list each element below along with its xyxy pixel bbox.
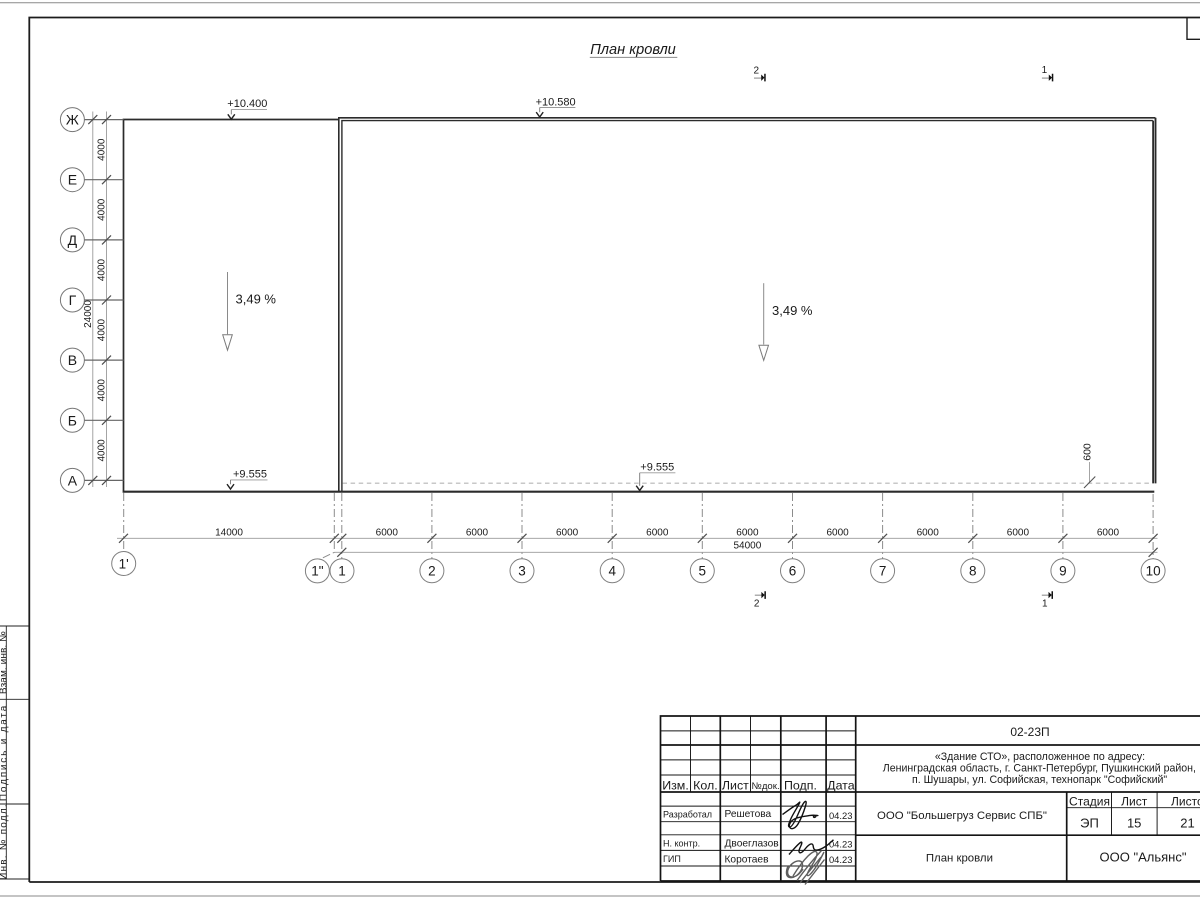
- svg-text:+10.580: +10.580: [536, 96, 576, 108]
- svg-text:Е: Е: [68, 172, 77, 188]
- svg-text:600: 600: [1082, 443, 1094, 461]
- svg-text:8: 8: [969, 564, 977, 579]
- svg-text:6000: 6000: [917, 528, 940, 539]
- svg-text:4: 4: [608, 564, 616, 579]
- svg-text:Листов: Листов: [1171, 795, 1200, 809]
- svg-text:02-23П: 02-23П: [1010, 725, 1049, 739]
- svg-text:Изм.: Изм.: [662, 778, 689, 792]
- svg-text:4000: 4000: [97, 198, 108, 221]
- svg-text:Подпись и дата: Подпись и дата: [0, 704, 9, 801]
- svg-text:15: 15: [1127, 816, 1141, 831]
- svg-text:1: 1: [1042, 598, 1048, 609]
- svg-text:6000: 6000: [556, 528, 579, 539]
- svg-text:6000: 6000: [646, 528, 669, 539]
- svg-text:Кол.: Кол.: [693, 778, 718, 792]
- svg-text:Г: Г: [69, 292, 77, 308]
- svg-text:6000: 6000: [826, 528, 849, 539]
- svg-text:Б: Б: [68, 412, 77, 428]
- svg-text:4000: 4000: [97, 439, 108, 462]
- svg-text:6000: 6000: [1007, 528, 1030, 539]
- svg-text:14000: 14000: [215, 528, 243, 539]
- svg-text:1": 1": [311, 564, 324, 579]
- svg-text:6000: 6000: [736, 528, 759, 539]
- svg-text:4000: 4000: [97, 258, 108, 281]
- svg-text:04.23: 04.23: [829, 810, 852, 821]
- svg-text:Стадия: Стадия: [1069, 795, 1110, 809]
- svg-text:ГИП: ГИП: [663, 854, 681, 864]
- svg-text:Решетова: Решетова: [725, 809, 772, 820]
- svg-text:Н. контр.: Н. контр.: [663, 838, 700, 848]
- svg-text:Лист: Лист: [722, 778, 749, 792]
- svg-text:6000: 6000: [1097, 528, 1120, 539]
- svg-text:ЭП: ЭП: [1080, 816, 1099, 831]
- svg-text:ООО "Большегруз Сервис СПБ": ООО "Большегруз Сервис СПБ": [877, 810, 1047, 822]
- svg-text:А: А: [68, 472, 78, 488]
- svg-text:6000: 6000: [376, 528, 399, 539]
- svg-text:Двоеглазов: Двоеглазов: [725, 839, 779, 850]
- svg-text:4000: 4000: [97, 138, 108, 161]
- svg-text:3: 3: [518, 564, 526, 579]
- svg-text:План кровли: План кровли: [590, 42, 676, 58]
- svg-text:п. Шушары, ул. Софийская, техн: п. Шушары, ул. Софийская, технопарк "Соф…: [912, 774, 1167, 786]
- svg-text:+10.400: +10.400: [227, 98, 267, 110]
- svg-text:+9.555: +9.555: [233, 469, 267, 481]
- svg-text:6000: 6000: [466, 528, 489, 539]
- svg-text:Ленинградская область, г. Санк: Ленинградская область, г. Санкт-Петербур…: [883, 763, 1196, 775]
- svg-text:10: 10: [1146, 564, 1161, 579]
- svg-text:№док.: №док.: [752, 781, 780, 792]
- svg-text:6: 6: [789, 564, 797, 579]
- svg-text:4000: 4000: [97, 319, 108, 342]
- svg-text:ООО "Альянс": ООО "Альянс": [1100, 850, 1187, 865]
- svg-text:5: 5: [699, 564, 707, 579]
- svg-text:2: 2: [754, 65, 760, 76]
- svg-text:54000: 54000: [733, 540, 761, 551]
- svg-text:21: 21: [1180, 816, 1194, 831]
- svg-text:+9.555: +9.555: [640, 461, 674, 473]
- svg-text:Лист: Лист: [1121, 795, 1148, 809]
- svg-text:Взам. инв. №: Взам. инв. №: [0, 631, 9, 694]
- svg-text:2: 2: [754, 598, 760, 609]
- svg-text:Подп.: Подп.: [784, 778, 817, 792]
- svg-text:9: 9: [1059, 564, 1067, 579]
- svg-text:Инв. № подл.: Инв. № подл.: [0, 803, 9, 880]
- svg-text:«Здание СТО», расположенное по: «Здание СТО», расположенное по адресу:: [935, 751, 1145, 763]
- svg-text:4000: 4000: [97, 379, 108, 402]
- svg-text:Дата: Дата: [827, 778, 855, 792]
- svg-text:2: 2: [428, 564, 436, 579]
- svg-text:План кровли: План кровли: [926, 853, 993, 865]
- svg-text:1': 1': [119, 556, 129, 571]
- svg-text:24000: 24000: [83, 300, 94, 328]
- svg-text:04.23: 04.23: [829, 854, 852, 865]
- svg-text:3,49 %: 3,49 %: [236, 291, 277, 306]
- svg-text:7: 7: [879, 564, 887, 579]
- svg-text:3,49 %: 3,49 %: [772, 303, 813, 318]
- svg-text:В: В: [68, 352, 77, 368]
- svg-text:Ж: Ж: [66, 112, 79, 128]
- svg-text:1: 1: [338, 564, 346, 579]
- svg-text:1: 1: [1042, 65, 1048, 76]
- svg-text:Д: Д: [68, 232, 78, 248]
- svg-text:Коротаев: Коротаев: [725, 854, 769, 865]
- svg-text:Разработал: Разработал: [663, 810, 712, 820]
